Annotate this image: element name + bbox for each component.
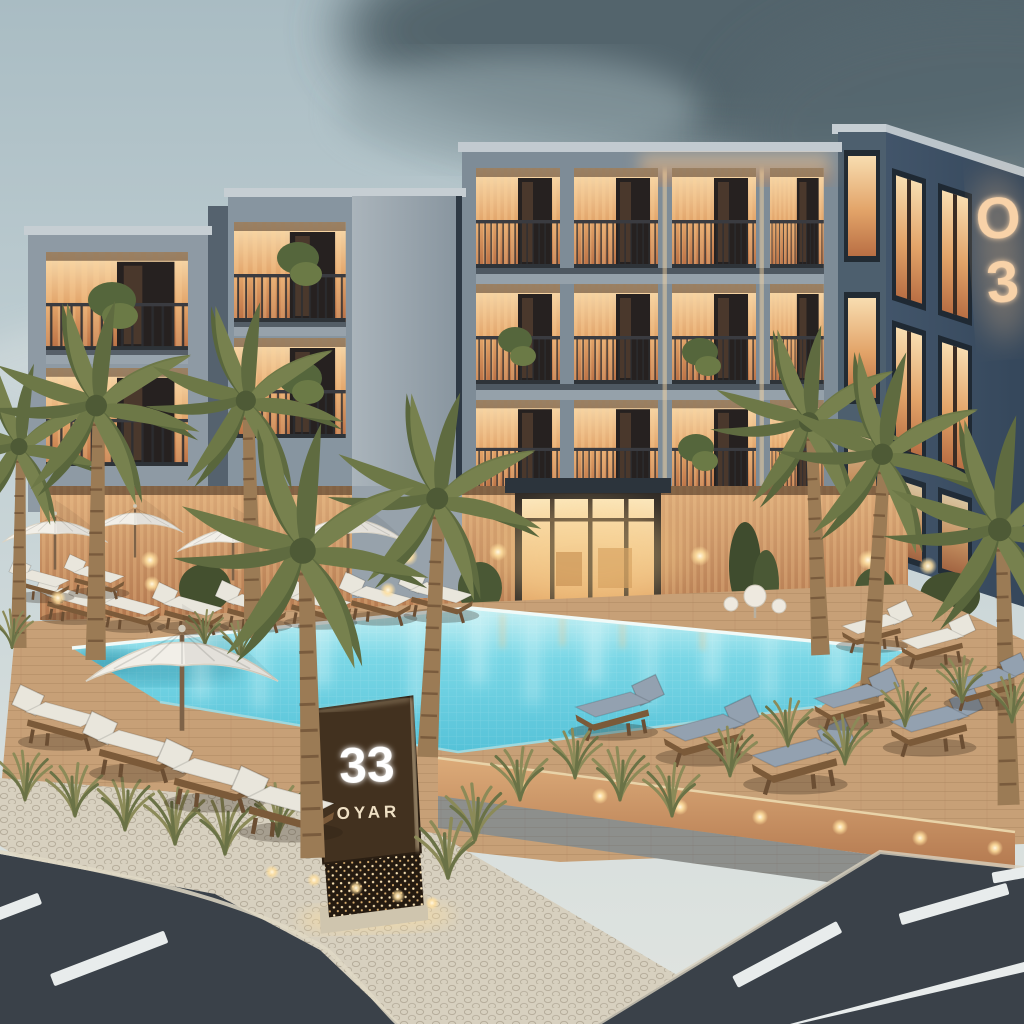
entrance-canopy [505,478,671,493]
facade-sign-bottom-char: 3 [984,249,1021,316]
sign-number: 33 [338,736,396,794]
hotel-exterior-render: O 3 [0,0,1024,1024]
led-strip [760,170,764,488]
led-strip [663,170,667,488]
sign-word: OYAR [336,802,400,823]
render-canvas: O 3 [0,0,1024,1024]
facade-sign-top-char: O [973,185,1023,253]
